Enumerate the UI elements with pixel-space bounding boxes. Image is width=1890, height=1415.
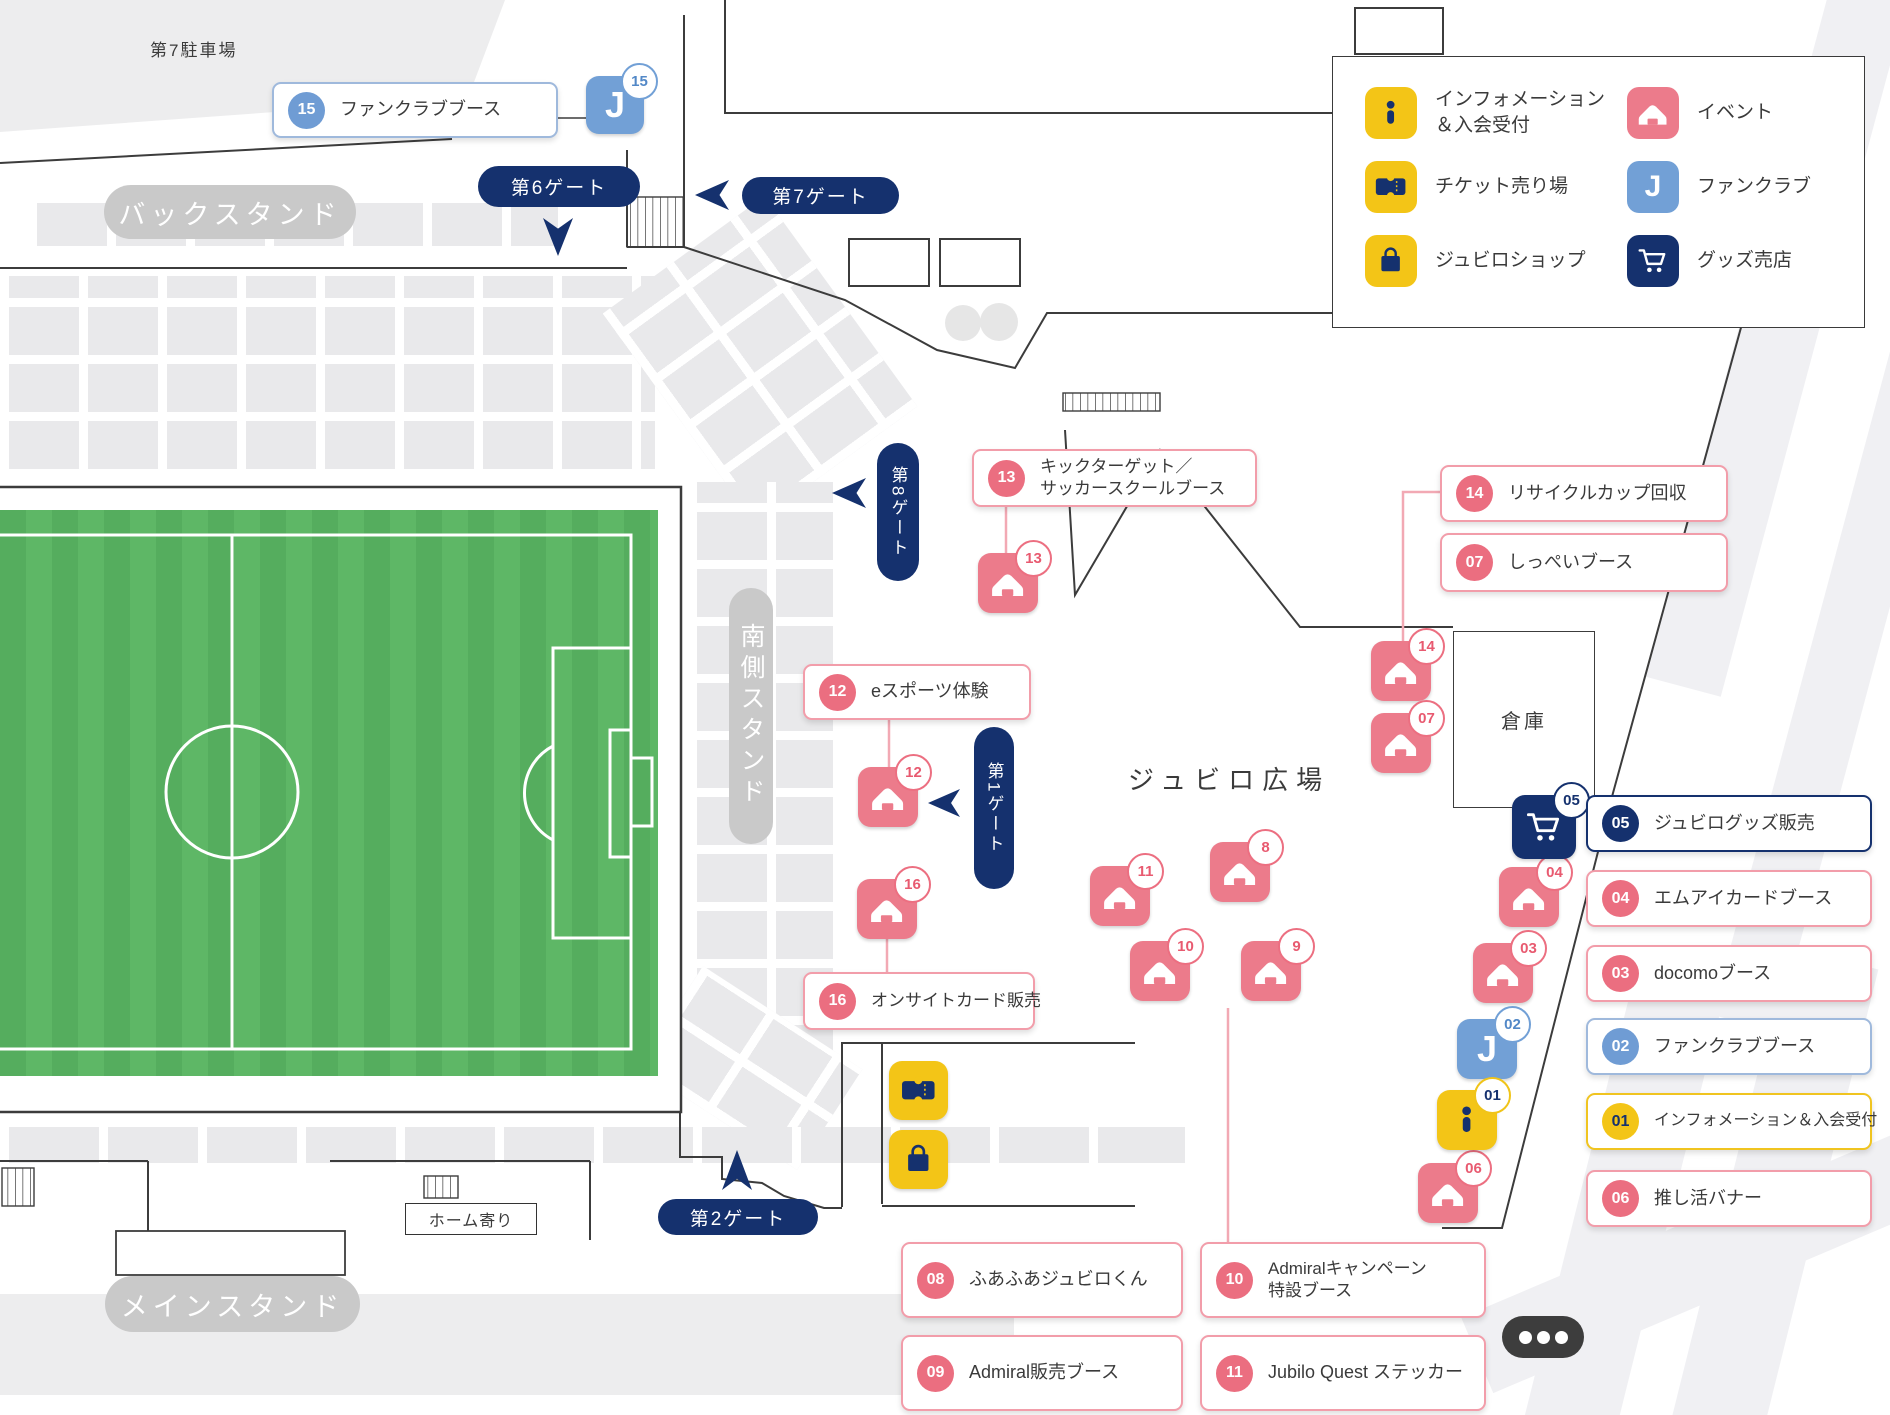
booth-badge: 13 bbox=[988, 460, 1025, 497]
marker-ticket-office[interactable] bbox=[889, 1061, 948, 1120]
marker-badge: 02 bbox=[1494, 1006, 1531, 1043]
booth-badge: 14 bbox=[1456, 475, 1493, 512]
booth-label-08[interactable]: 08 ふあふあジュビロくん bbox=[901, 1242, 1183, 1318]
marker-badge: 16 bbox=[894, 866, 931, 903]
booth-badge: 04 bbox=[1602, 880, 1639, 917]
plaza-title: ジュビロ広場 bbox=[1128, 760, 1330, 797]
marker-badge: 06 bbox=[1455, 1150, 1492, 1187]
booth-badge: 07 bbox=[1456, 544, 1493, 581]
ellipsis-icon bbox=[1519, 1331, 1532, 1344]
marker-tent-12[interactable]: 12 bbox=[858, 767, 918, 827]
fanclub-icon: J bbox=[1477, 1031, 1497, 1067]
marker-badge: 8 bbox=[1247, 829, 1284, 866]
fanclub-icon: J bbox=[1627, 161, 1679, 213]
marker-tent-13[interactable]: 13 bbox=[978, 553, 1038, 613]
cart-icon bbox=[1627, 235, 1679, 287]
gate-1-arrow-icon bbox=[928, 789, 960, 817]
main-stand-pill: メインスタンド bbox=[105, 1276, 360, 1332]
main-stand-seats bbox=[0, 1127, 1185, 1163]
marker-tent-16[interactable]: 16 bbox=[857, 879, 917, 939]
booth-badge: 03 bbox=[1602, 955, 1639, 992]
booth-badge: 11 bbox=[1216, 1355, 1253, 1392]
booth-label-02[interactable]: 02 ファンクラブブース bbox=[1586, 1018, 1872, 1075]
booth-label-15[interactable]: 15 ファンクラブブース bbox=[272, 82, 558, 138]
marker-badge: 01 bbox=[1474, 1077, 1511, 1114]
booth-label-06[interactable]: 06 推し活バナー bbox=[1586, 1170, 1872, 1227]
booth-label-01[interactable]: 01 インフォメーション＆入会受付 bbox=[1586, 1093, 1872, 1150]
back-stand-pill: バックスタンド bbox=[104, 185, 356, 239]
gate-8-pill: 第8ゲート bbox=[877, 443, 919, 581]
booth-label-12[interactable]: 12 eスポーツ体験 bbox=[803, 664, 1031, 720]
marker-badge: 04 bbox=[1536, 854, 1573, 891]
marker-badge: 11 bbox=[1127, 853, 1164, 890]
booth-badge: 02 bbox=[1602, 1028, 1639, 1065]
gate-1-pill: 第1ゲート bbox=[974, 727, 1014, 889]
marker-info-01[interactable]: 01 bbox=[1437, 1090, 1497, 1150]
booth-label-09[interactable]: 09 Admiral販売ブース bbox=[901, 1335, 1183, 1411]
south-stand-pill: 南側スタンド bbox=[729, 588, 773, 844]
info-icon bbox=[1365, 87, 1417, 139]
booth-label-13[interactable]: 13 キックターゲット／サッカースクールブース bbox=[972, 449, 1257, 507]
parking-label: 第7駐車場 bbox=[150, 36, 237, 61]
marker-badge: 10 bbox=[1167, 928, 1204, 965]
back-stand-seats bbox=[0, 276, 655, 478]
marker-fanclub-02[interactable]: J 02 bbox=[1457, 1019, 1517, 1079]
stadium-map: 第7駐車場 バックスタンド 南側スタンド メインスタンド ホーム寄り 倉庫 ジュ… bbox=[0, 0, 1890, 1415]
marker-tent-07[interactable]: 07 bbox=[1371, 713, 1431, 773]
ticket-icon bbox=[900, 1072, 937, 1109]
legend-item-goods: グッズ売店 bbox=[1627, 235, 1864, 287]
marker-fanclub-15[interactable]: J 15 bbox=[586, 76, 644, 134]
booth-label-03[interactable]: 03 docomoブース bbox=[1586, 945, 1872, 1002]
marker-tent-8[interactable]: 8 bbox=[1210, 842, 1270, 902]
booth-label-16[interactable]: 16 オンサイトカード販売 bbox=[803, 972, 1035, 1030]
marker-tent-11[interactable]: 11 bbox=[1090, 866, 1150, 926]
booth-badge: 08 bbox=[917, 1262, 954, 1299]
booth-label-14[interactable]: 14 リサイクルカップ回収 bbox=[1440, 465, 1728, 522]
legend-item-event: イベント bbox=[1627, 87, 1864, 139]
marker-badge: 07 bbox=[1408, 700, 1445, 737]
marker-jubilo-shop[interactable] bbox=[889, 1130, 948, 1189]
marker-tent-9[interactable]: 9 bbox=[1241, 941, 1301, 1001]
tree bbox=[980, 303, 1018, 341]
legend-item-shop: ジュビロショップ bbox=[1365, 235, 1627, 287]
ellipsis-icon bbox=[1537, 1331, 1550, 1344]
booth-badge: 09 bbox=[917, 1355, 954, 1392]
ticket-icon bbox=[1365, 161, 1417, 213]
gate-7-arrow-icon bbox=[695, 180, 729, 210]
legend-item-fanclub: J ファンクラブ bbox=[1627, 161, 1864, 213]
legend-item-ticket: チケット売り場 bbox=[1365, 161, 1627, 213]
marker-badge: 14 bbox=[1408, 628, 1445, 665]
marker-tent-10[interactable]: 10 bbox=[1130, 941, 1190, 1001]
booth-badge: 06 bbox=[1602, 1180, 1639, 1217]
gate-6-pill: 第6ゲート bbox=[478, 166, 640, 207]
booth-badge: 01 bbox=[1602, 1103, 1639, 1140]
soccer-field bbox=[0, 510, 658, 1076]
tree bbox=[945, 305, 981, 341]
booth-label-07[interactable]: 07 しっぺいブース bbox=[1440, 533, 1728, 592]
booth-label-11[interactable]: 11 Jubilo Quest ステッカー bbox=[1200, 1335, 1486, 1411]
gate-7-pill: 第7ゲート bbox=[742, 177, 899, 214]
marker-tent-03[interactable]: 03 bbox=[1473, 943, 1533, 1003]
booth-label-04[interactable]: 04 エムアイカードブース bbox=[1586, 870, 1872, 927]
booth-badge: 12 bbox=[819, 674, 856, 711]
home-side-box: ホーム寄り bbox=[405, 1203, 537, 1235]
booth-badge: 16 bbox=[819, 983, 856, 1020]
marker-tent-06[interactable]: 06 bbox=[1418, 1163, 1478, 1223]
marker-tent-04[interactable]: 04 bbox=[1499, 867, 1559, 927]
gate-8-arrow-icon bbox=[832, 478, 866, 508]
stadium bbox=[0, 487, 681, 1112]
marker-badge: 03 bbox=[1510, 930, 1547, 967]
booth-badge: 05 bbox=[1602, 805, 1639, 842]
tent-icon bbox=[1627, 87, 1679, 139]
booth-label-05[interactable]: 05 ジュビログッズ販売 bbox=[1586, 795, 1872, 852]
marker-badge: 15 bbox=[621, 63, 658, 100]
booth-label-10[interactable]: 10 Admiralキャンペーン特設ブース bbox=[1200, 1242, 1486, 1318]
marker-badge: 05 bbox=[1553, 782, 1590, 819]
shop-bag-icon bbox=[1365, 235, 1417, 287]
legend-item-info: インフォメーション＆入会受付 bbox=[1365, 87, 1627, 139]
legend-panel: インフォメーション＆入会受付 イベント チケット売り場 J ファンクラブ ジュビ… bbox=[1332, 56, 1865, 328]
shop-bag-icon bbox=[900, 1141, 937, 1178]
marker-badge: 12 bbox=[895, 754, 932, 791]
more-button[interactable] bbox=[1502, 1316, 1584, 1358]
marker-badge: 13 bbox=[1015, 540, 1052, 577]
gate-2-pill: 第2ゲート bbox=[658, 1199, 818, 1235]
booth-badge: 15 bbox=[288, 92, 325, 129]
marker-goods-05[interactable]: 05 bbox=[1512, 795, 1576, 859]
marker-badge: 9 bbox=[1278, 928, 1315, 965]
fanclub-icon: J bbox=[605, 87, 625, 123]
booth-badge: 10 bbox=[1216, 1262, 1253, 1299]
ellipsis-icon bbox=[1555, 1331, 1568, 1344]
marker-tent-14[interactable]: 14 bbox=[1371, 641, 1431, 701]
